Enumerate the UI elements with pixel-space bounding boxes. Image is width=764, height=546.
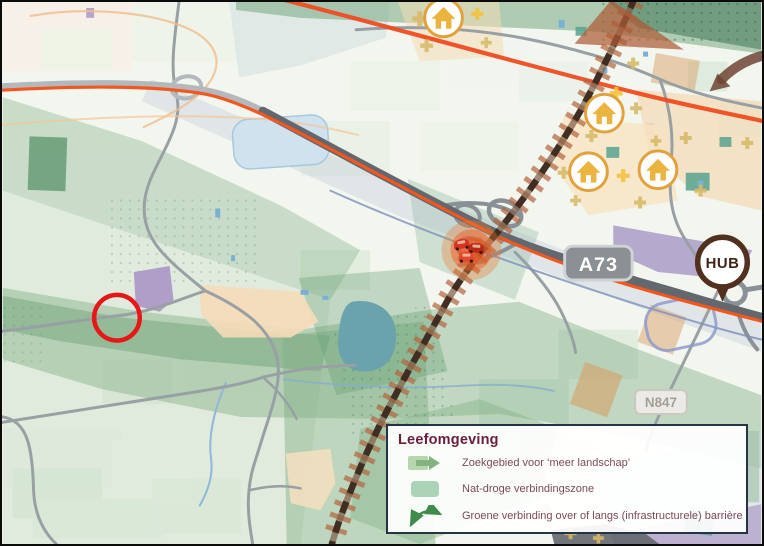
house-icon xyxy=(570,153,608,191)
a73-shield: A73 xyxy=(565,246,633,280)
map-figure: A73 N847 HUB Leefomgeving Zoekgebied voo… xyxy=(0,0,764,546)
legend-box: Leefomgeving Zoekgebied voor ‘meer lands… xyxy=(386,424,748,534)
legend-item-label: Zoekgebied voor ‘meer landschap’ xyxy=(462,457,630,469)
n847-label: N847 xyxy=(645,395,677,410)
nat-droge-zone-swatch-icon xyxy=(388,480,462,498)
groene-verbinding-arrow-icon xyxy=(388,505,462,527)
zoekgebied-arrow-icon xyxy=(388,453,462,473)
legend-item-groene-verbinding: Groene verbinding over of langs (infrast… xyxy=(388,505,746,527)
car-icon xyxy=(458,252,474,263)
legend-item-nat-droge: Nat-droge verbindingszone xyxy=(388,478,746,500)
house-icon xyxy=(585,94,623,132)
house-icon xyxy=(639,151,677,189)
congestion-icon xyxy=(442,220,502,280)
n847-shield: N847 xyxy=(635,390,687,414)
legend-title: Leefomgeving xyxy=(398,432,499,448)
legend-item-zoekgebied: Zoekgebied voor ‘meer landschap’ xyxy=(388,452,746,474)
a73-label: A73 xyxy=(579,254,618,276)
house-icon xyxy=(425,2,463,37)
legend-item-label: Groene verbinding over of langs (infrast… xyxy=(462,510,743,522)
legend-item-label: Nat-droge verbindingszone xyxy=(462,483,594,495)
hub-label: HUB xyxy=(706,256,740,272)
